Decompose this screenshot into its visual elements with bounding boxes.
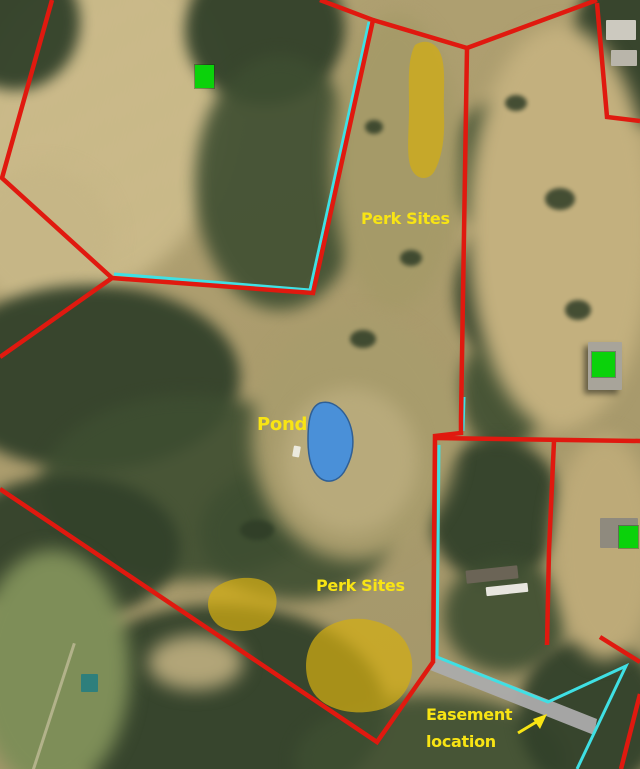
easement-label-line1: Easement	[426, 705, 512, 724]
pond-label: Pond	[257, 414, 307, 435]
perk-sites-top-label: Perk Sites	[361, 209, 450, 228]
boundary-line-red-west	[0, 0, 112, 357]
boundary-line-red-right-edge-a	[600, 637, 640, 662]
green-square-marker	[195, 65, 214, 88]
perk-site-area-top	[408, 42, 444, 178]
easement-arrow-icon	[518, 714, 547, 733]
perk-site-area-bottom-right	[306, 619, 412, 713]
boundary-line-red-mid-vertical	[547, 441, 554, 645]
boundary-line-red-top-right-corner	[597, 3, 640, 121]
annotation-overlay	[0, 0, 640, 769]
perk-site-area-bottom-left	[208, 578, 277, 631]
boundary-line-red-north-parcel	[112, 0, 373, 293]
boundary-line-red-mid-horizontal	[435, 438, 640, 441]
aerial-map-image: Perk Sites Pond Perk Sites Easement loca…	[0, 0, 640, 769]
perk-sites-bottom-label: Perk Sites	[316, 576, 405, 595]
green-square-marker	[619, 526, 638, 548]
survey-line-cyan-upper	[114, 22, 369, 290]
boundary-line-red-right-edge-b	[621, 694, 640, 769]
boundary-line-red-top	[373, 0, 597, 48]
easement-label-line2: location	[426, 732, 496, 751]
green-square-marker	[592, 352, 615, 377]
pond-shape	[308, 402, 353, 481]
